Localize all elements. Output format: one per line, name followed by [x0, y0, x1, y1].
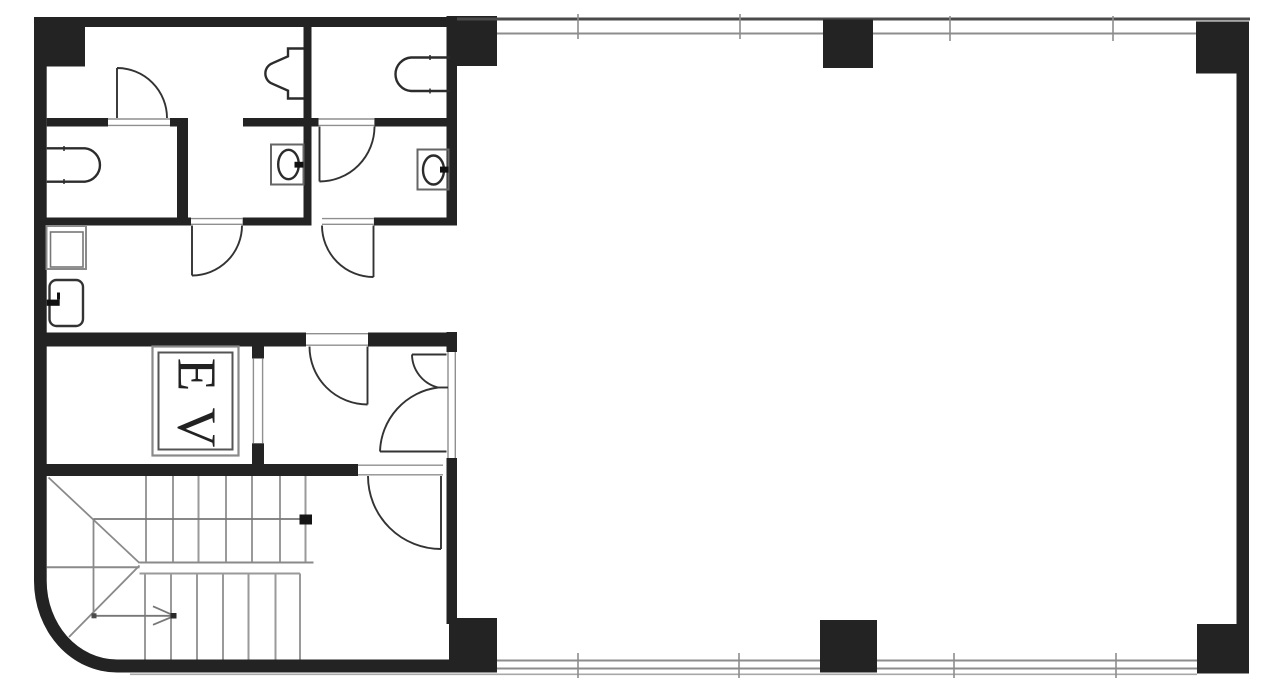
svg-text:V: V: [167, 408, 228, 448]
svg-text:E: E: [167, 358, 228, 392]
